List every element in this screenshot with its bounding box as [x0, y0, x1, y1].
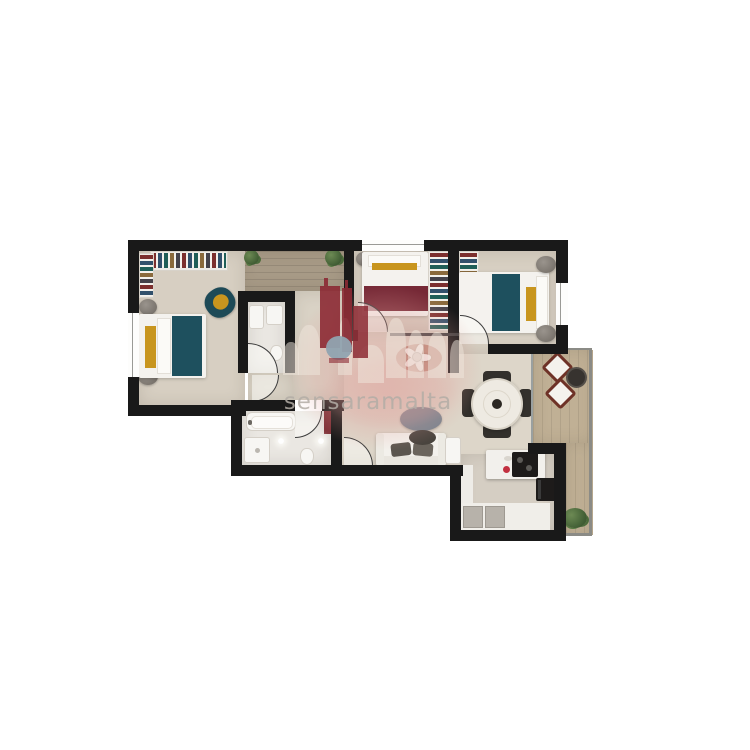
kettle-icon [503, 466, 510, 473]
plate [504, 456, 512, 461]
ceiling-light [318, 438, 324, 444]
cabinet [463, 506, 483, 528]
wardrobe-middle-clothes [430, 253, 448, 329]
floor-plan: sensaramalta [0, 0, 750, 750]
armchair-cushion [210, 291, 232, 312]
plant-icon [563, 508, 587, 528]
oven-handle [538, 480, 541, 499]
window-bedroom-middle [362, 240, 424, 251]
window-bedroom-right [556, 283, 568, 325]
terrace-railing-right [589, 350, 592, 536]
plant-icon [325, 249, 342, 266]
corridor-floor [293, 291, 344, 400]
nightstand-pouf [139, 299, 157, 315]
nightstand-pouf [536, 256, 556, 273]
bed-left-runner [172, 316, 202, 376]
bedroom-middle-glass-partition [390, 333, 459, 336]
bed-right-pillows [536, 276, 548, 329]
bathtub-faucet [248, 420, 252, 425]
coffee-table [400, 407, 442, 431]
wall-right-upper [556, 240, 568, 283]
wall-kitchen-east [554, 443, 566, 541]
fan-hub [412, 352, 422, 362]
bed-right-runner [492, 274, 520, 331]
bathtub-inner [251, 416, 293, 429]
fridge [445, 437, 461, 464]
cooktop [512, 452, 538, 477]
burner [526, 465, 532, 471]
terrace-table [566, 367, 587, 388]
bathtub [246, 412, 296, 431]
wall-ensuite-west [238, 291, 248, 373]
wardrobe-left-side-clothes [140, 255, 153, 296]
wardrobe-left-top-clothes [152, 253, 226, 268]
terrace-railing-bottom [566, 533, 592, 536]
window-bedroom-left [128, 313, 139, 377]
side-table [409, 430, 436, 445]
bed-left-bench [145, 326, 156, 368]
wall-bathroom-top-west [231, 400, 295, 411]
dining-table-center [492, 399, 502, 409]
kitchen-counter-bottom [461, 503, 550, 530]
wall-bedroom-right-bottom [488, 344, 568, 354]
wall-bathroom-east [331, 400, 342, 476]
kitchen-island [486, 450, 545, 479]
wall-bedrooms-divider [448, 240, 459, 373]
ensuite-shower [266, 305, 283, 325]
terrace-sliding-door [531, 354, 533, 443]
toilet [300, 448, 314, 465]
wall-bedroom-left-bottom [128, 405, 246, 416]
wall-bottom-main [231, 465, 463, 476]
wall-top [128, 240, 568, 251]
sofa-arm [376, 433, 384, 466]
shower-pan [244, 437, 270, 463]
oven [536, 478, 556, 501]
ceiling-light [278, 438, 284, 444]
plant-icon [244, 250, 259, 265]
cabinet [485, 506, 505, 528]
bed-middle-bench [372, 263, 417, 270]
bed-left-pillows [157, 318, 171, 374]
ensuite-basin [249, 305, 264, 329]
burner [517, 457, 523, 463]
ceiling-fan-icon [399, 340, 435, 376]
sofa-cushion [390, 442, 411, 457]
wall-hall-bedroom-middle [344, 251, 354, 341]
wall-kitchen-top [528, 443, 566, 454]
shower-drain [255, 448, 260, 453]
wall-ensuite-east [285, 291, 295, 373]
wall-kitchen-bottom [450, 530, 566, 541]
nightstand-pouf [536, 325, 556, 342]
dining-table [471, 378, 523, 430]
